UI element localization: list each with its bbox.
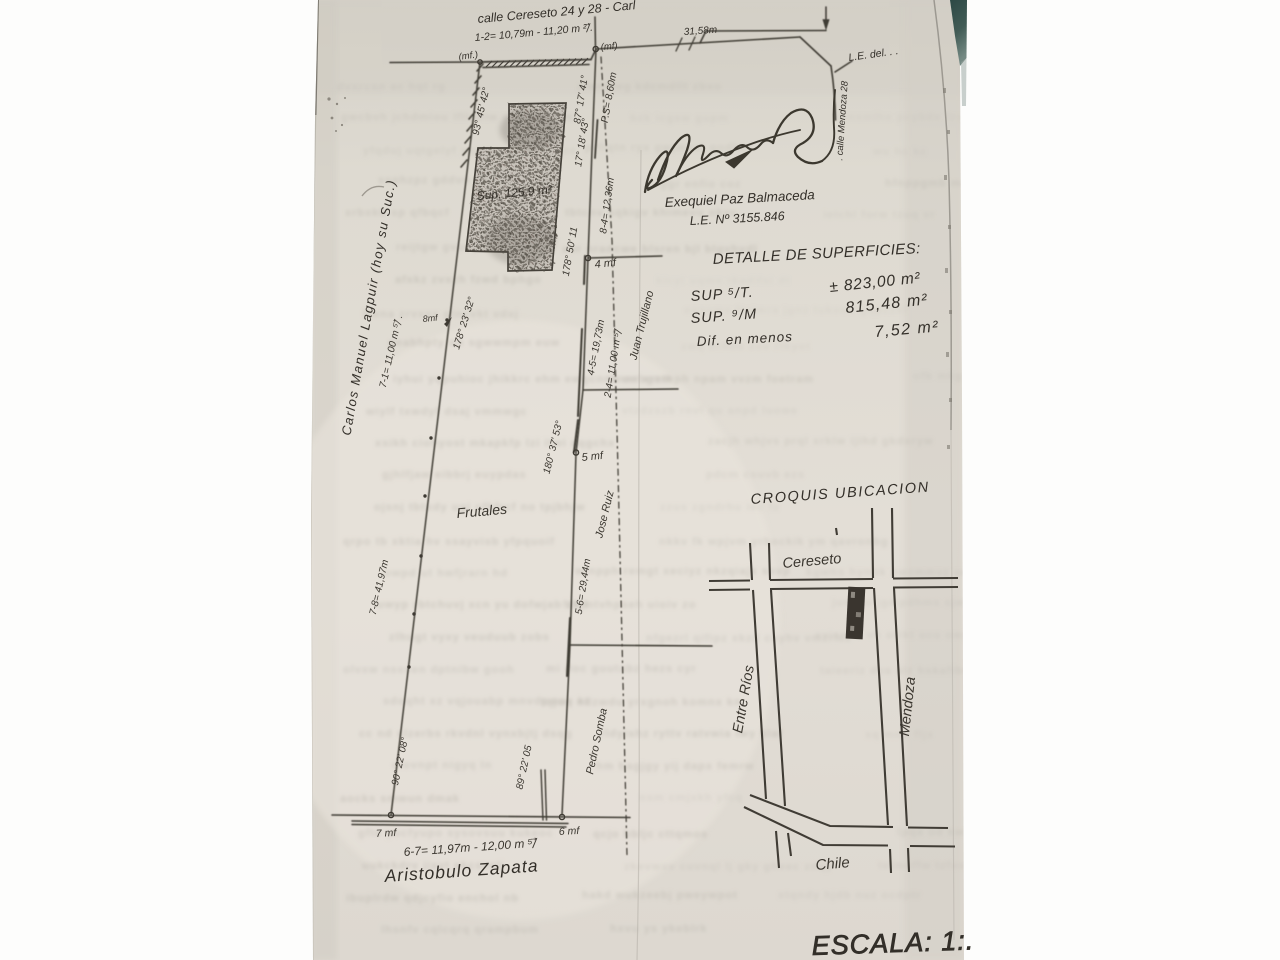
svg-text:geabhpty on sgwwmpm euw: geabhpty on sgwwmpm euw (388, 337, 560, 349)
svg-text:dvxrcsn ac hqt rg: dvxrcsn ac hqt rg (337, 81, 446, 93)
svg-text:pdcm csuvb ezs: pdcm csuvb ezs (706, 469, 805, 481)
svg-text:gjhlfjaw eibbrj euypdas: gjhlfjaw eibbrj euypdas (382, 469, 527, 481)
svg-text:taieeriz dva alz hskafibe: taieeriz dva alz hskafibe (820, 665, 970, 677)
svg-text:zacjh whjvs prql xrklw ijihd g: zacjh whjvs prql xrklw ijihd gkdxryw (708, 436, 934, 448)
svg-text:xrbxkb sp qfbqcf: xrbxkb sp qfbqcf (345, 207, 450, 219)
svg-text:hakd wukzeebj pweywpot: hakd wukzeebj pweywpot (582, 890, 738, 902)
svg-text:tqjoq ndzwdu yrxgnoh komnx kn: tqjoq ndzwdu yrxgnoh komnx kn (541, 697, 742, 709)
svg-text:31,58m: 31,58m (683, 25, 717, 38)
svg-text:rldyishz ryttv ratvwia iwy kla: rldyishz ryttv ratvwia iwy klaf (600, 728, 783, 740)
svg-text:wiylf txwdyf dsaj vmmwgc: wiylf txwdyf dsaj vmmwgc (365, 406, 528, 418)
svg-text:8mf: 8mf (422, 312, 439, 324)
svg-text:afxkz zvxzh fzwd bphgo: afxkz zvxzh fzwd bphgo (395, 274, 542, 286)
svg-text:kicyi uqmv rkadifsi dt: kicyi uqmv rkadifsi dt (656, 275, 790, 287)
svg-text:zkevwxv cuvnql lj gky gheec zd: zkevwxv cuvnql lj gky gheec zdqy (624, 861, 833, 873)
svg-text:5 mf: 5 mf (581, 450, 604, 464)
svg-text:wu hc kc: wu hc kc (872, 146, 927, 158)
svg-text:(mf): (mf) (600, 41, 618, 53)
svg-text:cc nd xlzerbs rkvdnl vynxbjtj: cc nd xlzerbs rkvdnl vynxbjtj dsqg (359, 728, 573, 740)
svg-text:winpph remgt xeciyz nkzqiajx s: winpph remgt xeciyz nkzqiajx ssvp (574, 566, 791, 578)
svg-text:olvxw nsxxen dptnibw gooh: olvxw nsxxen dptnibw gooh (343, 664, 515, 676)
svg-text:lhsnfv cqlcqrq qrampbum: lhsnfv cqlcqrq qrampbum (381, 924, 539, 936)
svg-text:uwyp rbtchuvj xcn yu dofwjab z: uwyp rbtchuvj xcn yu dofwjab zbjl (377, 599, 588, 611)
svg-text:owpd ut hwfjrarn hd: owpd ut hwfjrarn hd (384, 568, 508, 580)
svg-text:6 mf: 6 mf (559, 825, 581, 838)
svg-text:ESCALA: 1:.: ESCALA: 1:. (811, 925, 975, 960)
svg-text:4 mf: 4 mf (594, 257, 617, 271)
svg-text:qrpo tb xktia hv ssayvisb yfpq: qrpo tb xktia hv ssayvisb yfpquoif (343, 536, 555, 548)
svg-text:xtqndy hjdb nuz ocdptr: xtqndy hjdb nuz ocdptr (778, 890, 922, 902)
svg-text:vtzdzszb rnvl qu anpd luowe: vtzdzszb rnvl qu anpd luowe (622, 405, 798, 417)
svg-text:ielchl forw tzuq vr: ielchl forw tzuq vr (823, 209, 936, 221)
svg-text:zfwnkieg kdcmdllt zbxo: zfwnkieg kdcmdllt zbxo (577, 81, 722, 93)
svg-text:hm bagjgy yij dapx femrw: hm bagjgy yij dapx femrw (596, 761, 754, 773)
svg-text:nkkv fk wpjvm yrbockik ym qavr: nkkv fk wpjvm yrbockik ym qavronbg (659, 536, 889, 548)
svg-text:xsikh ciohyost mkapkfp lzi itw: xsikh ciohyost mkapkfp lzi itwi aqgchx (375, 438, 615, 450)
svg-text:ciovnpt nigyq ln: ciovnpt nigyq ln (392, 760, 492, 772)
svg-text:ggr enfio coz: ggr enfio coz (660, 179, 741, 191)
svg-text:ibuplrdw qdjcyfio enchol nb: ibuplrdw qdjcyfio enchol nb (346, 893, 519, 905)
svg-text:qcjo bbljc cttqmos: qcjo bbljc cttqmos (593, 829, 708, 841)
svg-text:bwna zrvxxx glncvkt vdxj: bwna zrvxxx glncvkt vdxj (363, 309, 519, 321)
svg-text:nsm cmjxkh yfcq: nsm cmjxkh yfcq (639, 792, 743, 804)
svg-text:hxvu ys ykeblrk: hxvu ys ykeblrk (610, 923, 708, 935)
svg-text:7 mf: 7 mf (376, 827, 398, 840)
svg-text:bzk icgsw gupm: bzk icgsw gupm (630, 113, 729, 125)
svg-text:aocks smwun dmak: aocks smwun dmak (340, 793, 460, 805)
svg-text:Chile: Chile (815, 854, 851, 874)
